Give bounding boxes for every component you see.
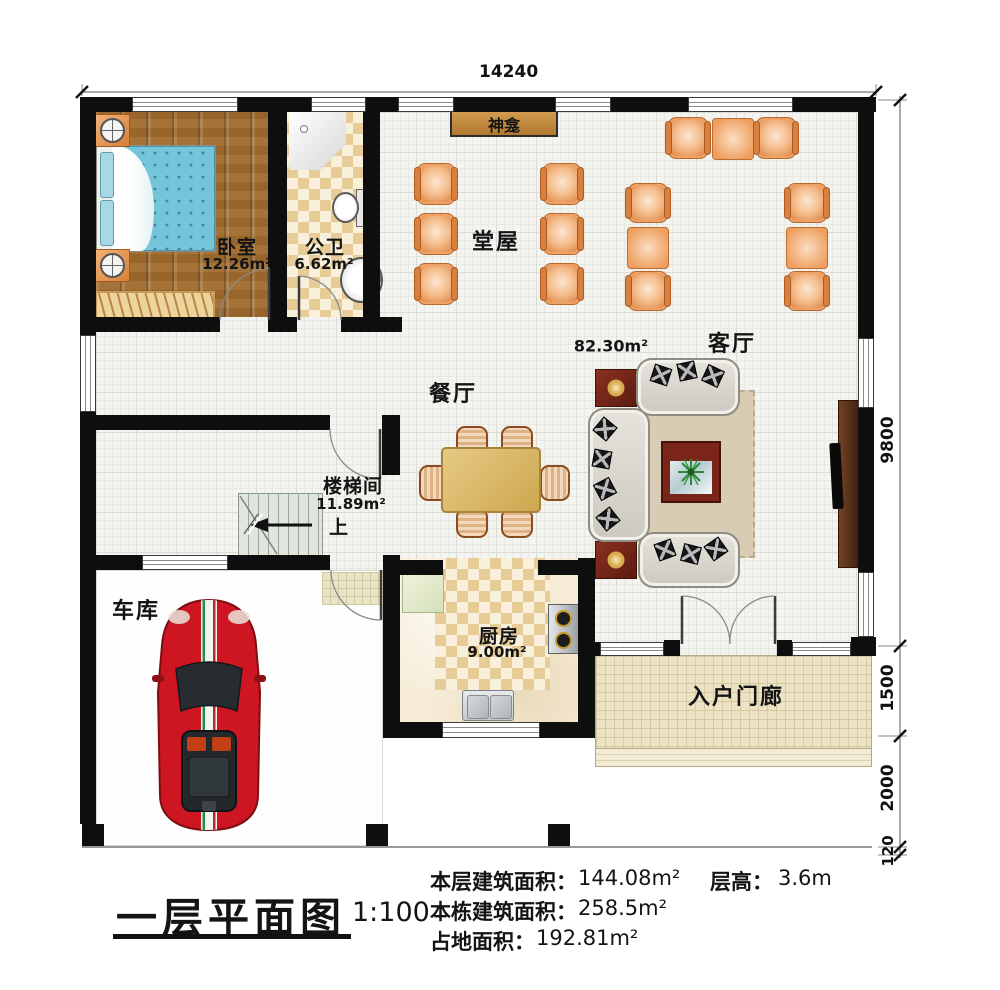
hall-chair bbox=[417, 213, 455, 255]
sink-basin bbox=[490, 695, 512, 719]
garage-label: 车库 bbox=[112, 593, 160, 625]
dining-table bbox=[441, 447, 541, 513]
bathroom-area: 6.62m² bbox=[294, 255, 353, 273]
shrine-label: 神龛 bbox=[488, 112, 520, 136]
window bbox=[80, 335, 96, 412]
sink-basin bbox=[467, 695, 489, 719]
staircase bbox=[238, 493, 323, 556]
window bbox=[132, 97, 238, 112]
dim-right-9800: 9800 bbox=[878, 416, 898, 463]
wall-kitchen-west bbox=[383, 555, 400, 738]
hall-side-table bbox=[712, 118, 754, 160]
window bbox=[311, 97, 366, 112]
pillar bbox=[82, 824, 104, 846]
dim-right-120: 120 bbox=[879, 835, 897, 866]
burner-icon bbox=[555, 632, 572, 649]
footprint-label: 占地面积： bbox=[430, 926, 535, 956]
wall-bedroom-south bbox=[80, 317, 220, 332]
wall-bath-hall bbox=[363, 112, 380, 332]
hall-chair bbox=[628, 183, 668, 223]
wall-kitchen-south-e bbox=[540, 722, 595, 738]
wall-stair-south-w bbox=[85, 555, 142, 570]
coffee-table-glass bbox=[670, 461, 712, 494]
coffee-table bbox=[661, 441, 721, 503]
wall-kitchen-east bbox=[578, 558, 595, 738]
hall-chair bbox=[417, 263, 455, 305]
hall-chair bbox=[417, 163, 455, 205]
dim-right-2000: 2000 bbox=[878, 764, 898, 811]
garage-door-mat bbox=[322, 572, 383, 605]
bedroom-area: 12.26m² bbox=[202, 255, 272, 273]
car bbox=[149, 597, 269, 833]
hall-chair bbox=[756, 117, 796, 159]
footprint-value: 192.81m² bbox=[536, 926, 638, 950]
kitchen-sink bbox=[462, 690, 514, 721]
corner-block bbox=[851, 637, 876, 656]
wall-door-pier bbox=[271, 317, 297, 332]
stove bbox=[548, 604, 579, 654]
bed bbox=[96, 145, 216, 252]
hall-chair bbox=[543, 263, 581, 305]
dining-label: 餐厅 bbox=[429, 376, 477, 408]
porch-step bbox=[595, 748, 872, 767]
wall-kitchen-north-w bbox=[400, 560, 443, 575]
stairwell-area: 11.89m² bbox=[316, 495, 386, 513]
hall-side-table bbox=[627, 227, 669, 269]
bed-pillow bbox=[100, 200, 114, 246]
toilet-bowl bbox=[332, 192, 359, 223]
window bbox=[688, 97, 793, 112]
window bbox=[555, 97, 611, 112]
drawing-scale: 1:100 bbox=[352, 897, 430, 928]
floor-area-label: 本层建筑面积： bbox=[430, 866, 577, 896]
hall-label: 堂屋 bbox=[472, 224, 520, 256]
wall-stair-north bbox=[96, 415, 330, 430]
hall-chair bbox=[787, 271, 827, 311]
bedroom-rug bbox=[95, 291, 215, 319]
window bbox=[398, 97, 454, 112]
pillar bbox=[548, 824, 570, 846]
end-table bbox=[595, 369, 637, 407]
table-lamp bbox=[100, 118, 125, 143]
floor-area-value: 144.08m² bbox=[578, 866, 680, 890]
hall-chair bbox=[668, 117, 708, 159]
hall-chair bbox=[787, 183, 827, 223]
door-pier bbox=[664, 640, 680, 656]
wall-bath-south bbox=[341, 317, 402, 332]
window bbox=[442, 722, 540, 738]
living-label: 客厅 bbox=[708, 326, 756, 358]
pillar bbox=[366, 824, 388, 846]
hall-side-table bbox=[786, 227, 828, 269]
porch-label: 入户门廊 bbox=[688, 679, 784, 711]
living-area: 82.30m² bbox=[574, 337, 648, 356]
end-table bbox=[595, 541, 637, 579]
wall-stair-south-e bbox=[228, 555, 330, 570]
bed-pillow bbox=[100, 152, 114, 198]
table-lamp bbox=[100, 253, 125, 278]
wall-stair-pier bbox=[382, 415, 400, 475]
shower-drain-icon bbox=[300, 125, 308, 133]
wall-left bbox=[80, 97, 96, 824]
wall-kitchen-south-w bbox=[400, 722, 442, 738]
window bbox=[858, 572, 874, 637]
window bbox=[792, 642, 851, 656]
hall-chair bbox=[628, 271, 668, 311]
window bbox=[600, 642, 664, 656]
floor-plan: 神龛 bbox=[0, 0, 1000, 990]
wall-kitchen-north-e bbox=[538, 560, 580, 575]
hall-chair bbox=[543, 163, 581, 205]
wall-bedroom-bath bbox=[268, 112, 287, 332]
refrigerator bbox=[402, 569, 444, 613]
storey-height-label: 层高： bbox=[710, 866, 773, 896]
stairs-up-label: 上 bbox=[329, 513, 349, 540]
burner-icon bbox=[555, 610, 572, 627]
building-area-value: 258.5m² bbox=[578, 896, 667, 920]
sofa-pillow bbox=[592, 449, 613, 470]
window bbox=[142, 555, 228, 570]
door-pier bbox=[777, 640, 792, 656]
storey-height-value: 3.6m bbox=[778, 866, 832, 890]
sofa-pillow bbox=[676, 360, 697, 381]
hall-chair bbox=[543, 213, 581, 255]
dim-right-1500: 1500 bbox=[878, 664, 898, 711]
window bbox=[858, 338, 874, 408]
title-underline bbox=[113, 934, 351, 939]
dining-chair bbox=[540, 465, 570, 501]
building-area-label: 本栋建筑面积： bbox=[430, 896, 577, 926]
dim-top: 14240 bbox=[479, 62, 538, 82]
kitchen-area: 9.00m² bbox=[467, 643, 526, 661]
driveway-line bbox=[82, 846, 872, 848]
